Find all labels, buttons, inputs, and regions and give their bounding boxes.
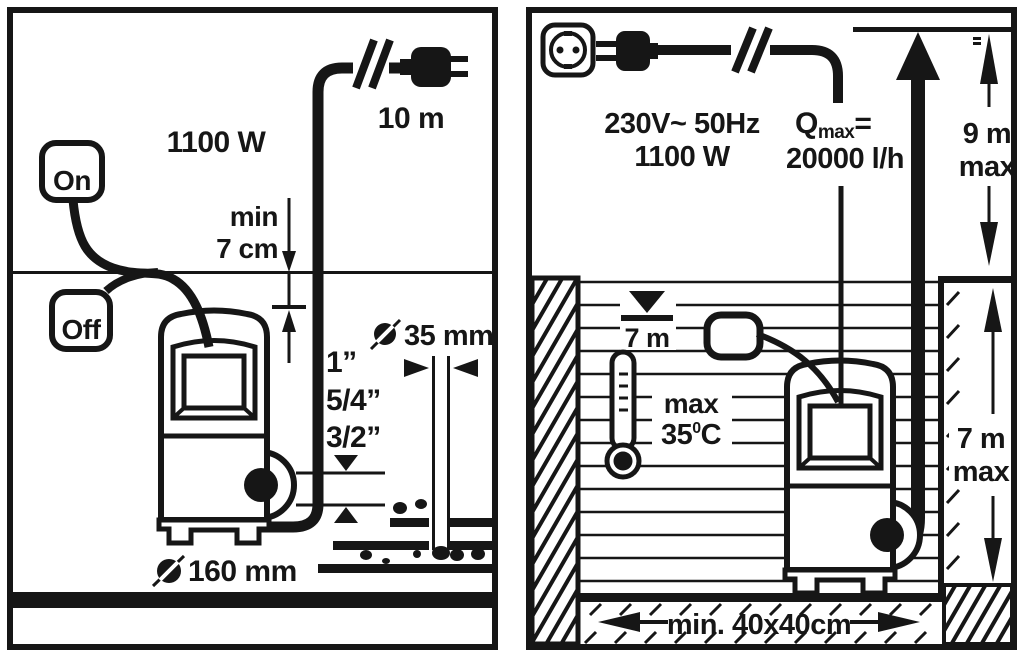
switch-on-badge: On bbox=[42, 143, 102, 200]
hose-size-3: 3/2” bbox=[326, 421, 381, 454]
pump-base-diameter-value: 160 mm bbox=[188, 555, 297, 588]
pipe-diameter-value: 35 mm bbox=[404, 320, 493, 352]
pit-left-wall bbox=[532, 278, 578, 644]
immersion-depth-value: 7 m bbox=[957, 423, 1005, 455]
water-depth-value: 7 m bbox=[624, 323, 669, 353]
hose-size-1: 1” bbox=[326, 346, 357, 379]
switch-off-label: Off bbox=[62, 314, 102, 345]
power-label: 1100 W bbox=[634, 141, 730, 173]
max-temperature-qualifier: max bbox=[664, 388, 719, 419]
delivery-head-qualifier: max bbox=[959, 151, 1016, 183]
min-depth-word: min bbox=[230, 201, 278, 232]
diagram-svg: 1100 W 10 m min 7 cm 1” 5/4” 3/2” bbox=[0, 0, 1024, 657]
power-rating-label: 1100 W bbox=[167, 126, 267, 159]
min-depth-value: 7 cm bbox=[216, 233, 278, 264]
delivery-head-value: 9 m bbox=[963, 118, 1011, 150]
qmax-equals: = bbox=[854, 107, 871, 140]
temp-number: 35 bbox=[661, 419, 693, 451]
voltage-label: 230V~ 50Hz bbox=[604, 108, 759, 140]
pit-floor bbox=[578, 593, 944, 602]
hose-size-2: 5/4” bbox=[326, 384, 381, 417]
qmax-symbol: Q bbox=[795, 107, 818, 140]
temp-unit: C bbox=[701, 419, 722, 451]
thermometer-icon bbox=[607, 352, 639, 477]
qmax-subscript: max bbox=[818, 122, 855, 143]
delivery-level-line bbox=[853, 27, 1014, 32]
water-depth-marker: 7 m bbox=[620, 286, 676, 353]
left-panel: 1100 W 10 m min 7 cm 1” 5/4” 3/2” bbox=[10, 10, 495, 647]
pit-right-wall-line bbox=[938, 276, 944, 602]
wall-socket-icon bbox=[543, 25, 593, 75]
right-column-top-border bbox=[938, 276, 1013, 283]
qmax-value: 20000 l/h bbox=[786, 143, 904, 175]
cable-length-label: 10 m bbox=[378, 102, 444, 135]
pit-size-value: min. 40x40cm bbox=[667, 609, 851, 641]
switch-off-badge: Off bbox=[52, 292, 110, 349]
pump-manual-diagram: 1100 W 10 m min 7 cm 1” 5/4” 3/2” bbox=[0, 0, 1024, 657]
ground-bar bbox=[13, 592, 492, 608]
immersion-depth-qualifier: max bbox=[953, 456, 1010, 488]
right-panel: 230V~ 50Hz 1100 W Qmax= 20000 l/h 9 m ma… bbox=[529, 10, 1016, 647]
max-temperature-value: 350C bbox=[661, 419, 722, 451]
max-temperature-label: max 350C bbox=[652, 388, 732, 451]
float-switch bbox=[707, 315, 760, 357]
switch-on-label: On bbox=[53, 165, 91, 196]
water-surface-line bbox=[13, 271, 492, 274]
pit-corner-block bbox=[944, 585, 1012, 644]
